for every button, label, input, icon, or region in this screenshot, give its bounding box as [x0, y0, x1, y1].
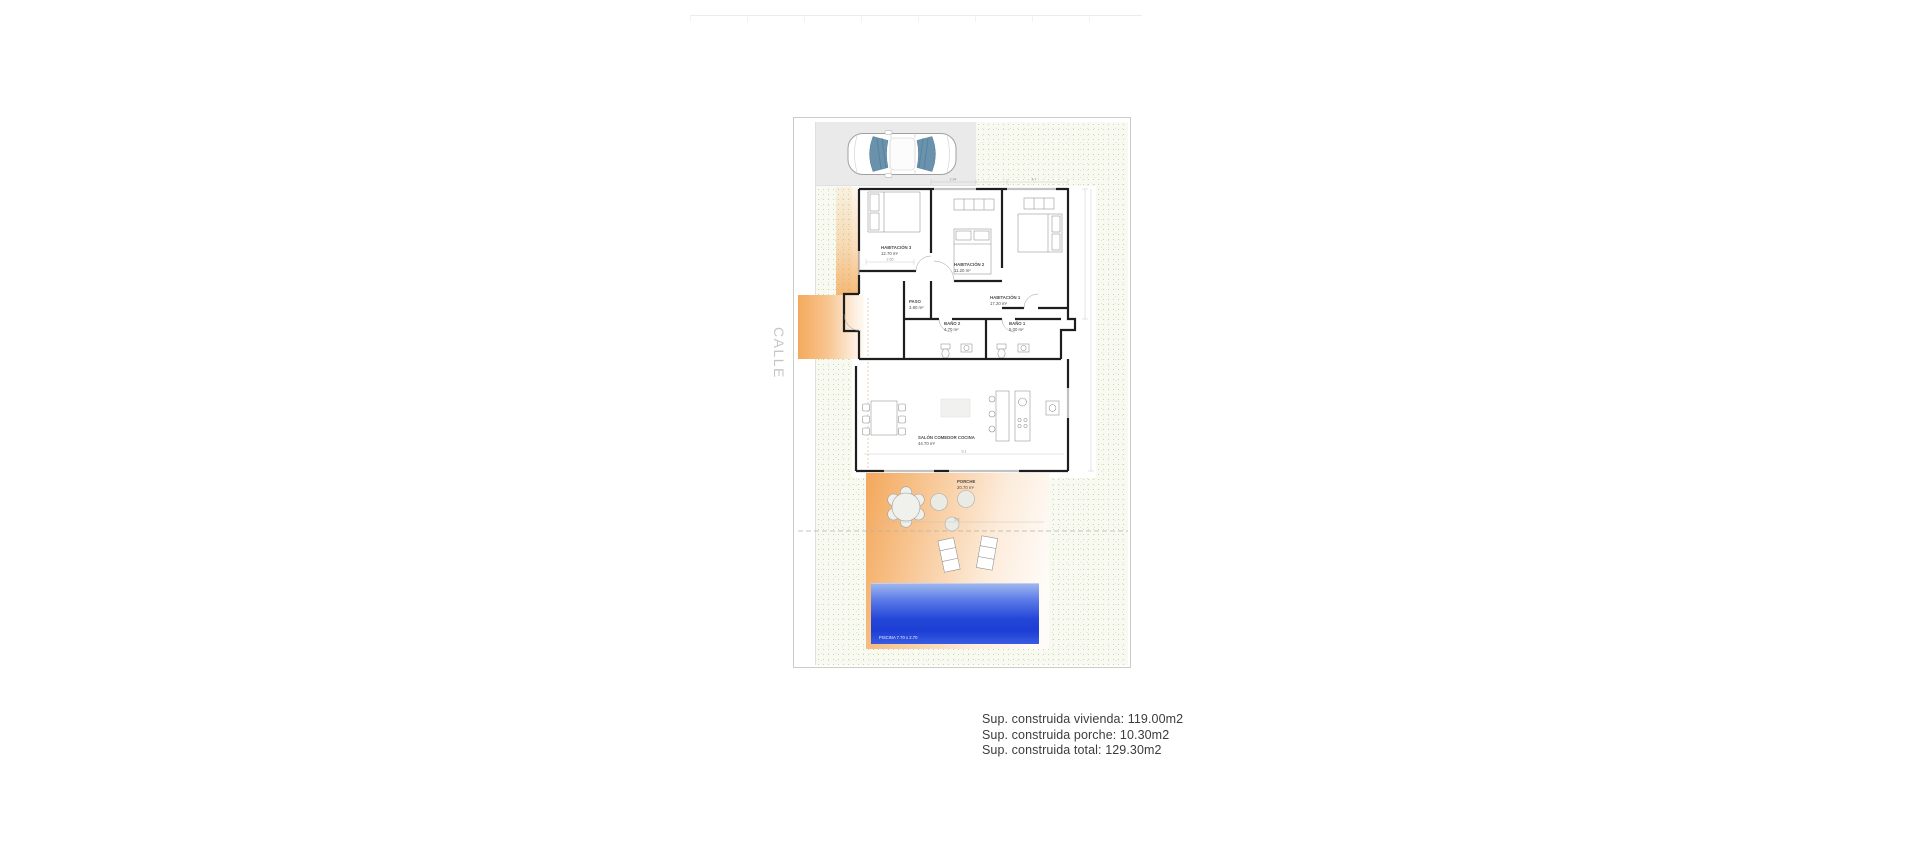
room-label-hab1: HABITACIÓN 1: [990, 295, 1021, 300]
room-label-bano2: BAÑO 2: [944, 321, 961, 326]
summary-line-total: Sup. construida total: 129.30m2: [982, 743, 1183, 759]
porch-table: [888, 487, 925, 528]
room-area-porche: 20.70 m²: [957, 485, 975, 490]
room-label-bano1: BAÑO 1: [1009, 321, 1026, 326]
car-icon: [848, 131, 956, 178]
room-area-hab2: 11.20 m²: [954, 268, 971, 273]
room-area-bano1: 5.00 m²: [1009, 327, 1024, 332]
room-label-hab2: HABITACIÓN 2: [954, 262, 985, 267]
summary-line-porche: Sup. construida porche: 10.30m2: [982, 728, 1183, 744]
room-area-hab3: 12.70 m²: [881, 251, 899, 256]
room-area-salon: 44.70 m²: [918, 441, 936, 446]
room-label-salon: SALÓN COMEDOR COCINA: [918, 435, 975, 440]
room-area-hab1: 17.20 m²: [990, 301, 1008, 306]
street-label: CALLE: [773, 327, 787, 379]
dim-text: 2.94: [950, 178, 957, 182]
site-plan: 2.94 4.7 2.65 9.1 5.2 HABITACIÓN 3 12.70…: [793, 117, 1131, 668]
dim-text: 4.7: [1032, 178, 1037, 182]
room-area-paso: 3.80 m²: [909, 305, 924, 310]
room-area-bano2: 4.70 m²: [944, 327, 959, 332]
planters: [931, 491, 975, 532]
dim-text: 9.1: [962, 450, 967, 454]
room-label-hab3: HABITACIÓN 3: [881, 245, 912, 250]
room-label-paso: PASO: [909, 299, 922, 304]
room-label-porche: PORCHE: [957, 479, 976, 484]
drawing-edge-ticks: [690, 16, 1142, 22]
dim-text: 2.65: [887, 258, 894, 262]
room-labels: HABITACIÓN 3 12.70 m² HABITACIÓN 2 11.20…: [881, 245, 1026, 490]
pool-label: PISCINA 7.70 x 2.70: [879, 635, 918, 640]
floor-plan-drawing: 2.94 4.7 2.65 9.1 5.2 HABITACIÓN 3 12.70…: [794, 118, 1132, 669]
summary-line-vivienda: Sup. construida vivienda: 119.00m2: [982, 712, 1183, 728]
sun-lounger: [976, 536, 997, 570]
summary-block: Sup. construida vivienda: 119.00m2 Sup. …: [982, 712, 1183, 759]
dim-text: 5.2: [955, 518, 960, 522]
sun-lounger: [938, 538, 960, 573]
